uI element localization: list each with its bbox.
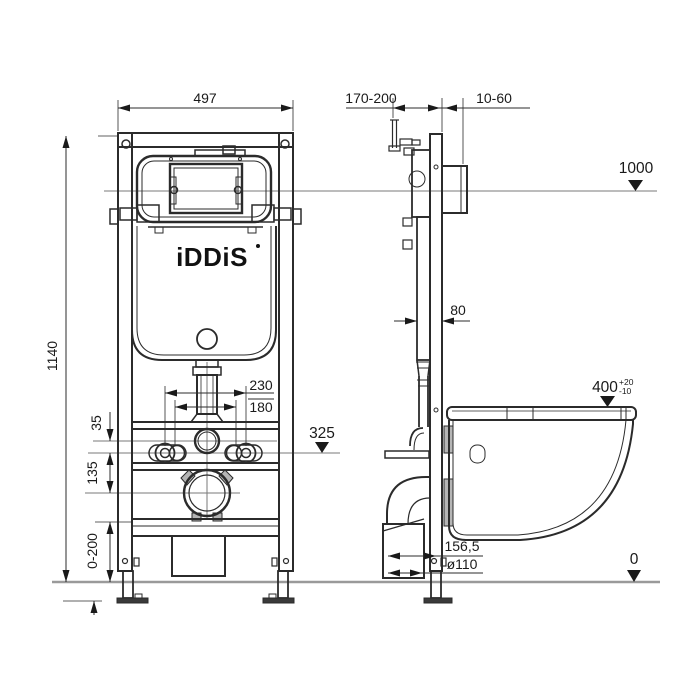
frame-left-post: [118, 133, 132, 571]
bracket-link-right: [274, 208, 291, 220]
leg-tube-left: [123, 571, 133, 598]
drain-elbow: [383, 477, 430, 578]
flush-opening: [170, 164, 242, 213]
leg-tube-right: [278, 571, 288, 598]
bracket-corner-left: [137, 205, 159, 222]
wall-bracket: [442, 166, 467, 213]
leg-clip-right: [272, 558, 277, 566]
dim-bolt-spacing-inner: 180: [249, 399, 273, 415]
outlet-box: [172, 536, 225, 576]
dim-outlet-offset: 156,5: [444, 538, 479, 554]
brand-logo: iDDiS: [176, 242, 248, 272]
bowl-outline: [449, 420, 633, 540]
inlet-fitting-2: [412, 140, 420, 145]
inlet-fitting-1: [400, 139, 412, 145]
bracket-ear-right: [293, 209, 301, 224]
dim-level-325: 325: [309, 425, 335, 442]
bracket-link-left: [120, 208, 137, 220]
bracket-foot-2: [248, 227, 256, 233]
frame-top-crossbar: [118, 133, 293, 147]
inlet-pipe-base: [389, 146, 400, 151]
bracket-foot-1: [155, 227, 163, 233]
side-cistern-body: [417, 217, 430, 360]
installation-frame-drawing: iDDiS: [0, 0, 700, 700]
level-marker-400: [600, 396, 615, 407]
level-marker-325: [315, 442, 329, 453]
bracket-dot-left: [170, 158, 173, 161]
dim-frame-depth: 80: [450, 302, 466, 318]
dim-leg-range: 0-200: [84, 533, 100, 569]
side-tab-1: [403, 218, 412, 226]
side-post-dot-top: [434, 165, 438, 169]
dim-bolt-spacing-outer: 230: [249, 377, 273, 393]
dim-bowl-height-minus: -10: [619, 386, 632, 396]
dim-level-0: 0: [630, 551, 639, 568]
support-bar: [385, 451, 429, 458]
side-post-dot-bottom: [434, 408, 438, 412]
technical-drawing-page: iDDiS: [0, 0, 700, 700]
leg-tube-side: [431, 571, 441, 598]
dim-bolt-to-drain: 135: [84, 461, 100, 485]
bottom-crossbar: [132, 519, 279, 536]
side-tab-2: [403, 240, 412, 249]
flush-plate-bracket: [110, 146, 301, 233]
leg-screw-left: [123, 559, 128, 564]
side-cistern-top: [412, 150, 430, 217]
drain-elbow-box: [383, 524, 424, 578]
leg-screw-right: [284, 559, 289, 564]
foot-plate-side: [424, 598, 452, 603]
level-marker-0: [627, 570, 641, 582]
flush-pipe-side: [410, 376, 430, 450]
side-dimensions: 170-200 10-60 1000 80 400 +20 -10 156,5 …: [345, 90, 653, 582]
bowl-inner-wall: [453, 420, 626, 535]
toilet-bowl: [444, 407, 636, 540]
side-post: [430, 134, 442, 571]
foot-nub-right: [269, 594, 276, 598]
foot-plate-left: [117, 598, 148, 603]
dim-wall-clearance: 10-60: [476, 90, 512, 106]
reference-lines: [52, 191, 660, 601]
leg-screw-side: [432, 559, 437, 564]
frame-right-post: [279, 133, 293, 571]
foot-plate-right: [263, 598, 294, 603]
foot-nub-left: [135, 594, 142, 598]
dim-level-1000: 1000: [619, 160, 654, 177]
bowl-inlet-port: [470, 445, 485, 463]
flush-opening-inner: [174, 168, 238, 209]
brand-trademark-dot: [256, 244, 260, 248]
dim-inlet-depth: 170-200: [345, 90, 397, 106]
seat-profile: [447, 407, 636, 420]
bracket-dot-right: [239, 158, 242, 161]
bracket-ear-left: [110, 209, 118, 224]
dim-frame-width: 497: [193, 90, 217, 106]
level-marker-1000: [628, 180, 643, 191]
dim-bowl-height: 400: [592, 379, 618, 396]
side-view: [383, 120, 636, 603]
dim-frame-height: 1140: [44, 341, 60, 371]
cistern-valve-circle: [197, 329, 217, 349]
dim-outlet-diameter: ø110: [447, 556, 478, 572]
leg-clip-left: [134, 558, 139, 566]
dim-rail-to-bolt: 35: [88, 415, 104, 431]
front-view: iDDiS: [110, 133, 301, 603]
